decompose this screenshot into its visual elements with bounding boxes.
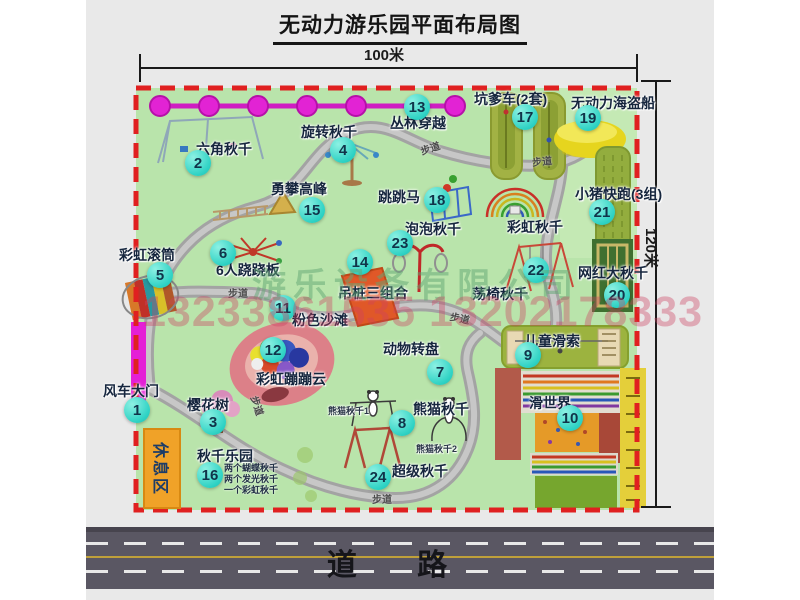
- badge-2: 2: [185, 150, 211, 176]
- rest-area: 休息区: [143, 428, 181, 509]
- label-big-swing: 网红大秋千: [578, 263, 648, 283]
- swing-park-note: 两个发光秋千: [224, 474, 278, 485]
- badge-16: 16: [197, 462, 223, 488]
- swing-park-note: 一个彩虹秋千: [224, 485, 278, 496]
- label-rainbow-roller: 彩虹滚筒: [119, 245, 175, 265]
- label-panda-swing-1: 熊猫秋千1: [328, 404, 369, 417]
- label-piggy-run: 小猪快跑(3组): [575, 184, 662, 204]
- badge-18: 18: [424, 187, 450, 213]
- label-climbing-peak: 勇攀高峰: [271, 179, 327, 199]
- road: 道 路: [86, 527, 714, 589]
- road-edge: [86, 527, 714, 532]
- badge-13: 13: [404, 94, 430, 120]
- badge-17: 17: [512, 104, 538, 130]
- badge-12: 12: [260, 337, 286, 363]
- rest-area-label: 休息区: [150, 441, 174, 495]
- badge-15: 15: [299, 197, 325, 223]
- dimension-top-label: 100米: [364, 44, 404, 65]
- label-rainbow-swing: 彩虹秋千: [507, 217, 563, 237]
- badge-8: 8: [389, 410, 415, 436]
- road-label: 道 路: [327, 540, 473, 584]
- badge-1: 1: [124, 397, 150, 423]
- badge-19: 19: [575, 105, 601, 131]
- label-super-swing: 超级秋千: [392, 461, 448, 481]
- label-pit-cars: 坑爹车(2套): [474, 89, 547, 109]
- label-bubble-swing: 泡泡秋千: [405, 219, 461, 239]
- watermark-phone: 13233861535 13202178333: [142, 288, 703, 337]
- page-title: 无动力游乐园平面布局图: [273, 9, 527, 45]
- screenshot-root: 无动力游乐园平面布局图 100米 120米 步道 步道 步道 步道 步道 步道 …: [0, 0, 800, 600]
- label-panda-swing: 熊猫秋千: [413, 399, 469, 419]
- swing-park-note: 两个蝴蝶秋千: [224, 463, 278, 474]
- walkway-label: 步道: [531, 152, 552, 169]
- label-panda-swing-2: 熊猫秋千2: [416, 442, 457, 455]
- badge-3: 3: [200, 409, 226, 435]
- badge-10: 10: [557, 405, 583, 431]
- label-animal-turntable: 动物转盘: [383, 339, 439, 359]
- label-bounce-cloud: 彩虹蹦蹦云: [256, 369, 326, 389]
- label-jumping-horse: 跳跳马: [378, 187, 420, 207]
- swing-park-notes: 两个蝴蝶秋千 两个发光秋千 一个彩虹秋千: [224, 463, 278, 496]
- badge-21: 21: [589, 199, 615, 225]
- walkway-label: 步道: [372, 491, 392, 506]
- badge-4: 4: [330, 137, 356, 163]
- badge-24: 24: [365, 464, 391, 490]
- badge-23: 23: [387, 230, 413, 256]
- badge-9: 9: [515, 342, 541, 368]
- badge-6: 6: [210, 240, 236, 266]
- badge-5: 5: [147, 262, 173, 288]
- badge-7: 7: [427, 359, 453, 385]
